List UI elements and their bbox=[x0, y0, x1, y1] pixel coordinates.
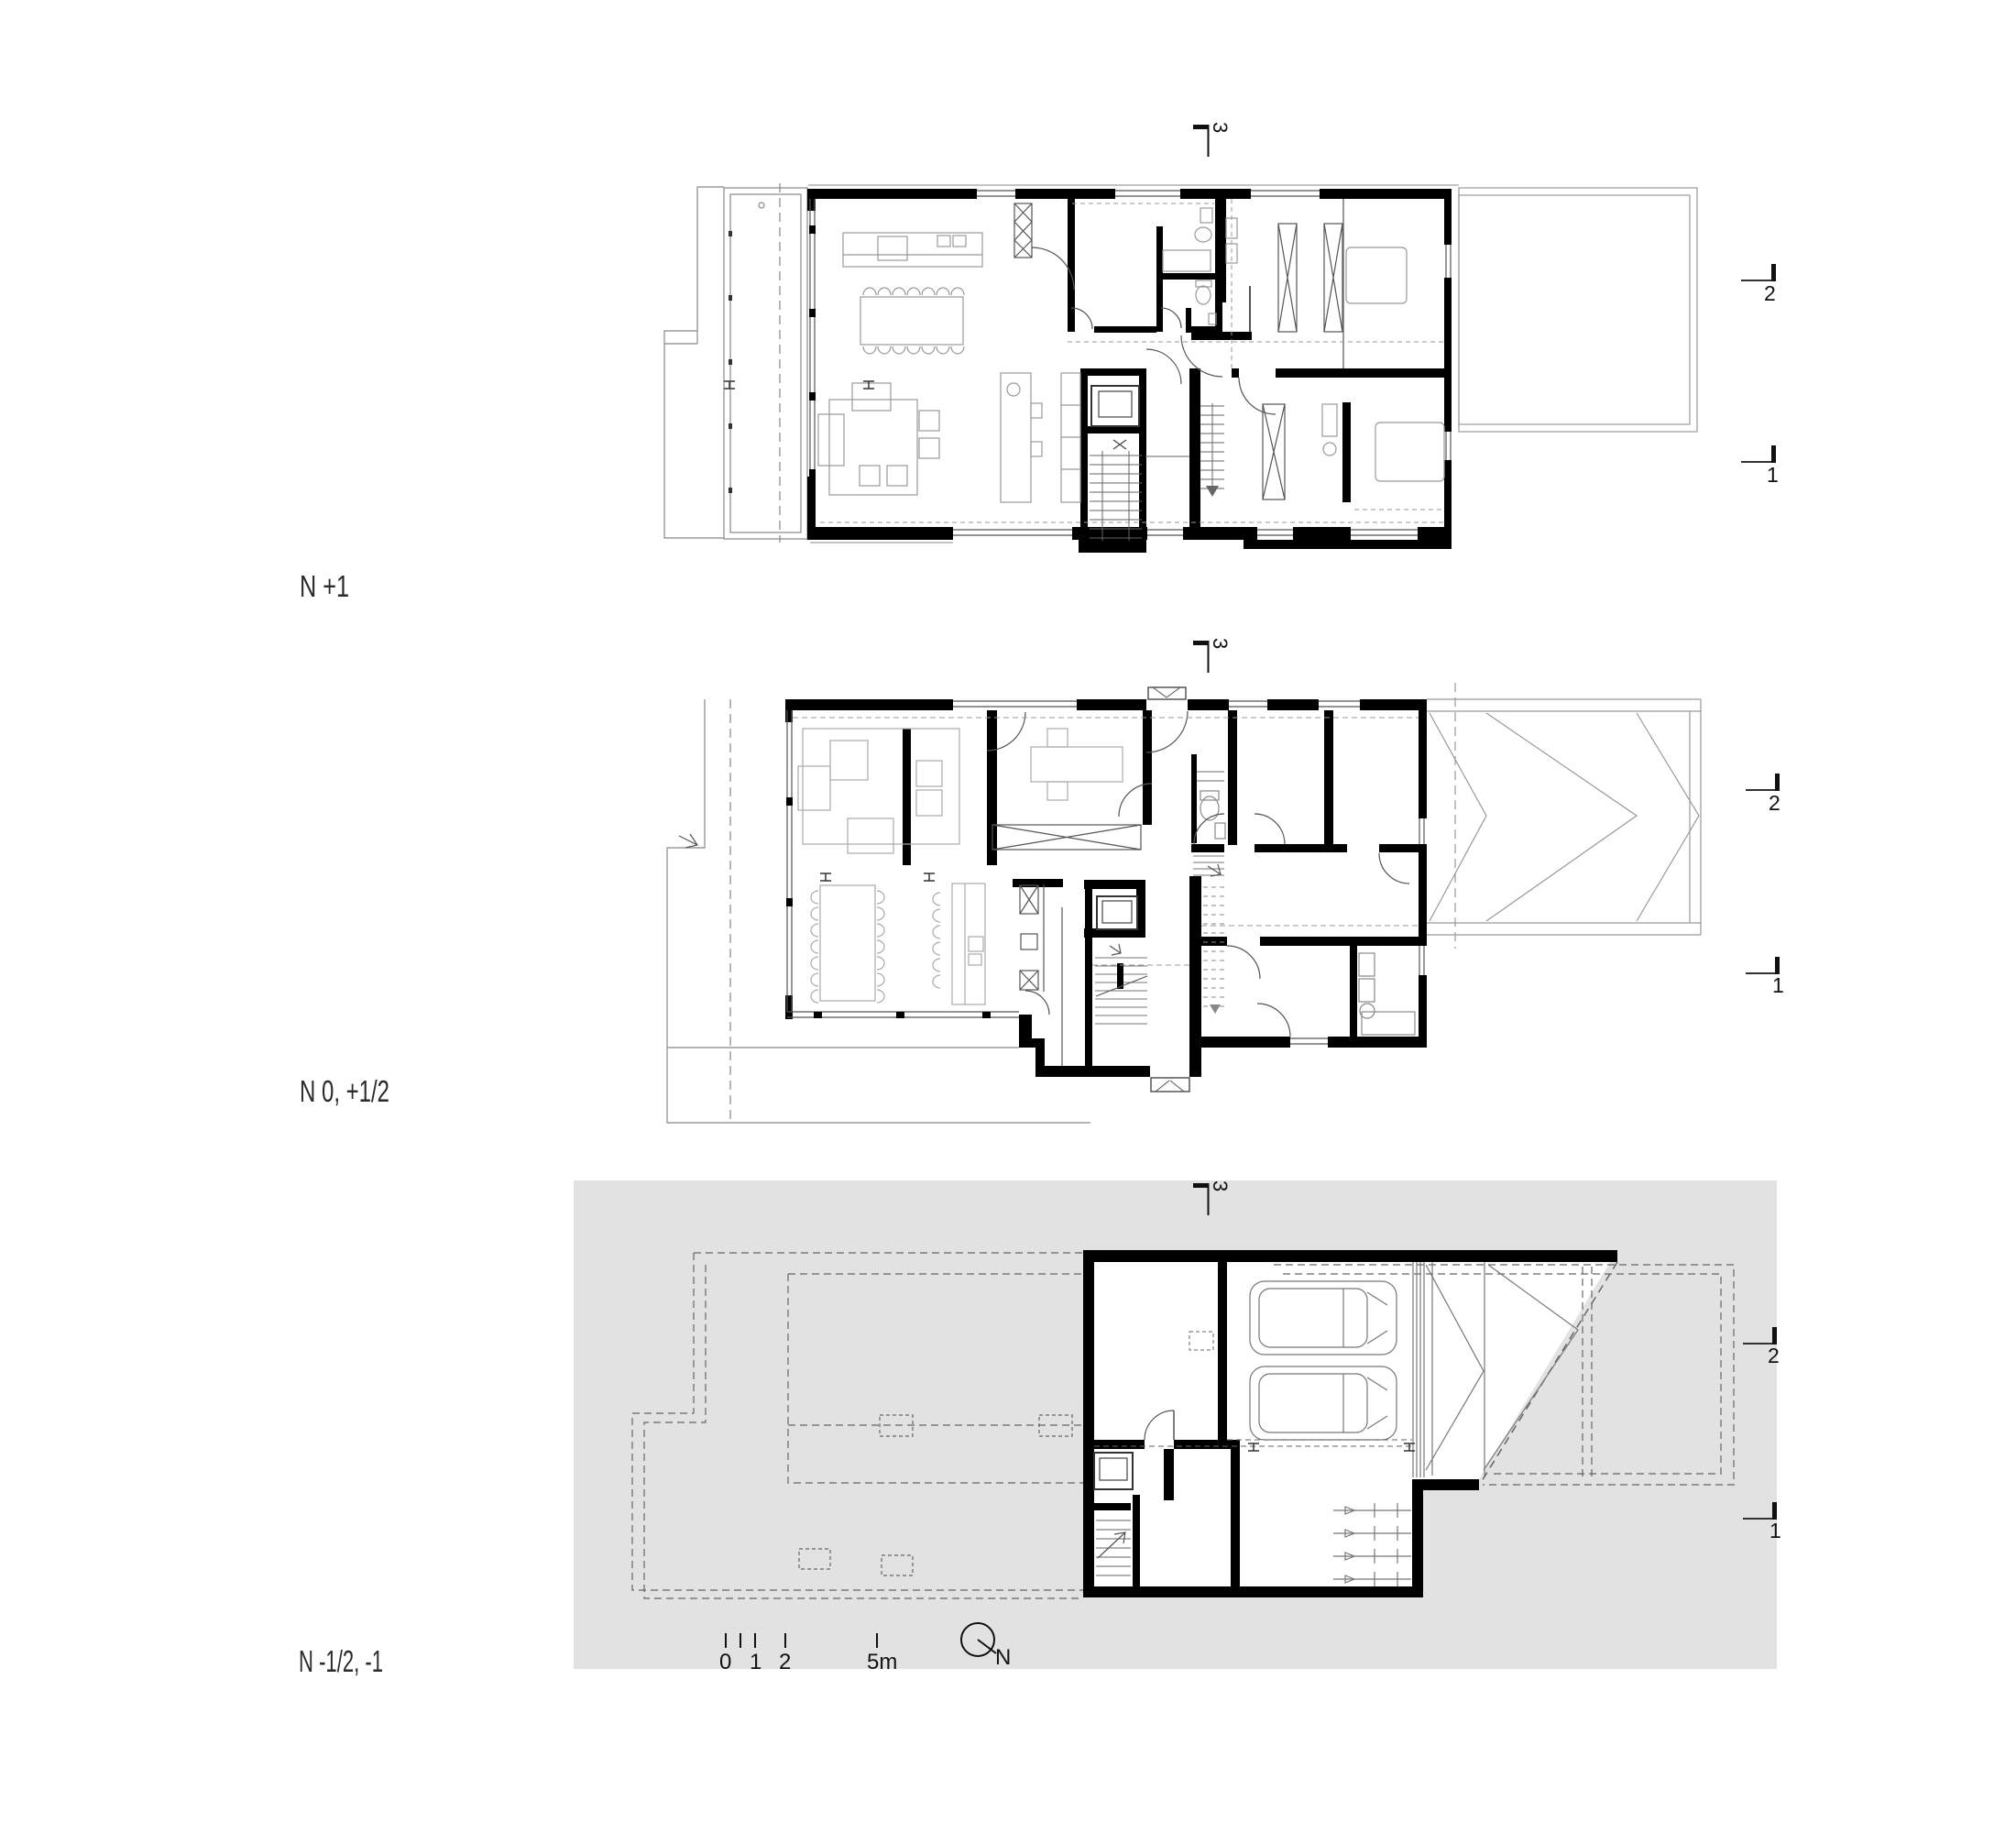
svg-text:2: 2 bbox=[779, 1650, 791, 1674]
svg-text:N -1/2, -1: N -1/2, -1 bbox=[299, 1644, 383, 1678]
svg-text:3: 3 bbox=[1209, 638, 1232, 649]
svg-text:2: 2 bbox=[1768, 1344, 1780, 1367]
svg-text:3: 3 bbox=[1209, 1180, 1232, 1191]
svg-text:N 0, +1/2: N 0, +1/2 bbox=[300, 1074, 389, 1108]
svg-text:1: 1 bbox=[1769, 1519, 1781, 1542]
svg-text:5m: 5m bbox=[867, 1650, 897, 1674]
svg-text:1: 1 bbox=[750, 1650, 761, 1674]
svg-text:1: 1 bbox=[1767, 463, 1779, 487]
svg-text:3: 3 bbox=[1209, 122, 1232, 133]
svg-text:0: 0 bbox=[719, 1650, 731, 1674]
svg-text:N: N bbox=[995, 1645, 1011, 1670]
svg-text:N +1: N +1 bbox=[300, 569, 349, 603]
svg-text:2: 2 bbox=[1764, 281, 1776, 305]
svg-text:2: 2 bbox=[1769, 791, 1780, 815]
svg-text:1: 1 bbox=[1772, 973, 1784, 997]
